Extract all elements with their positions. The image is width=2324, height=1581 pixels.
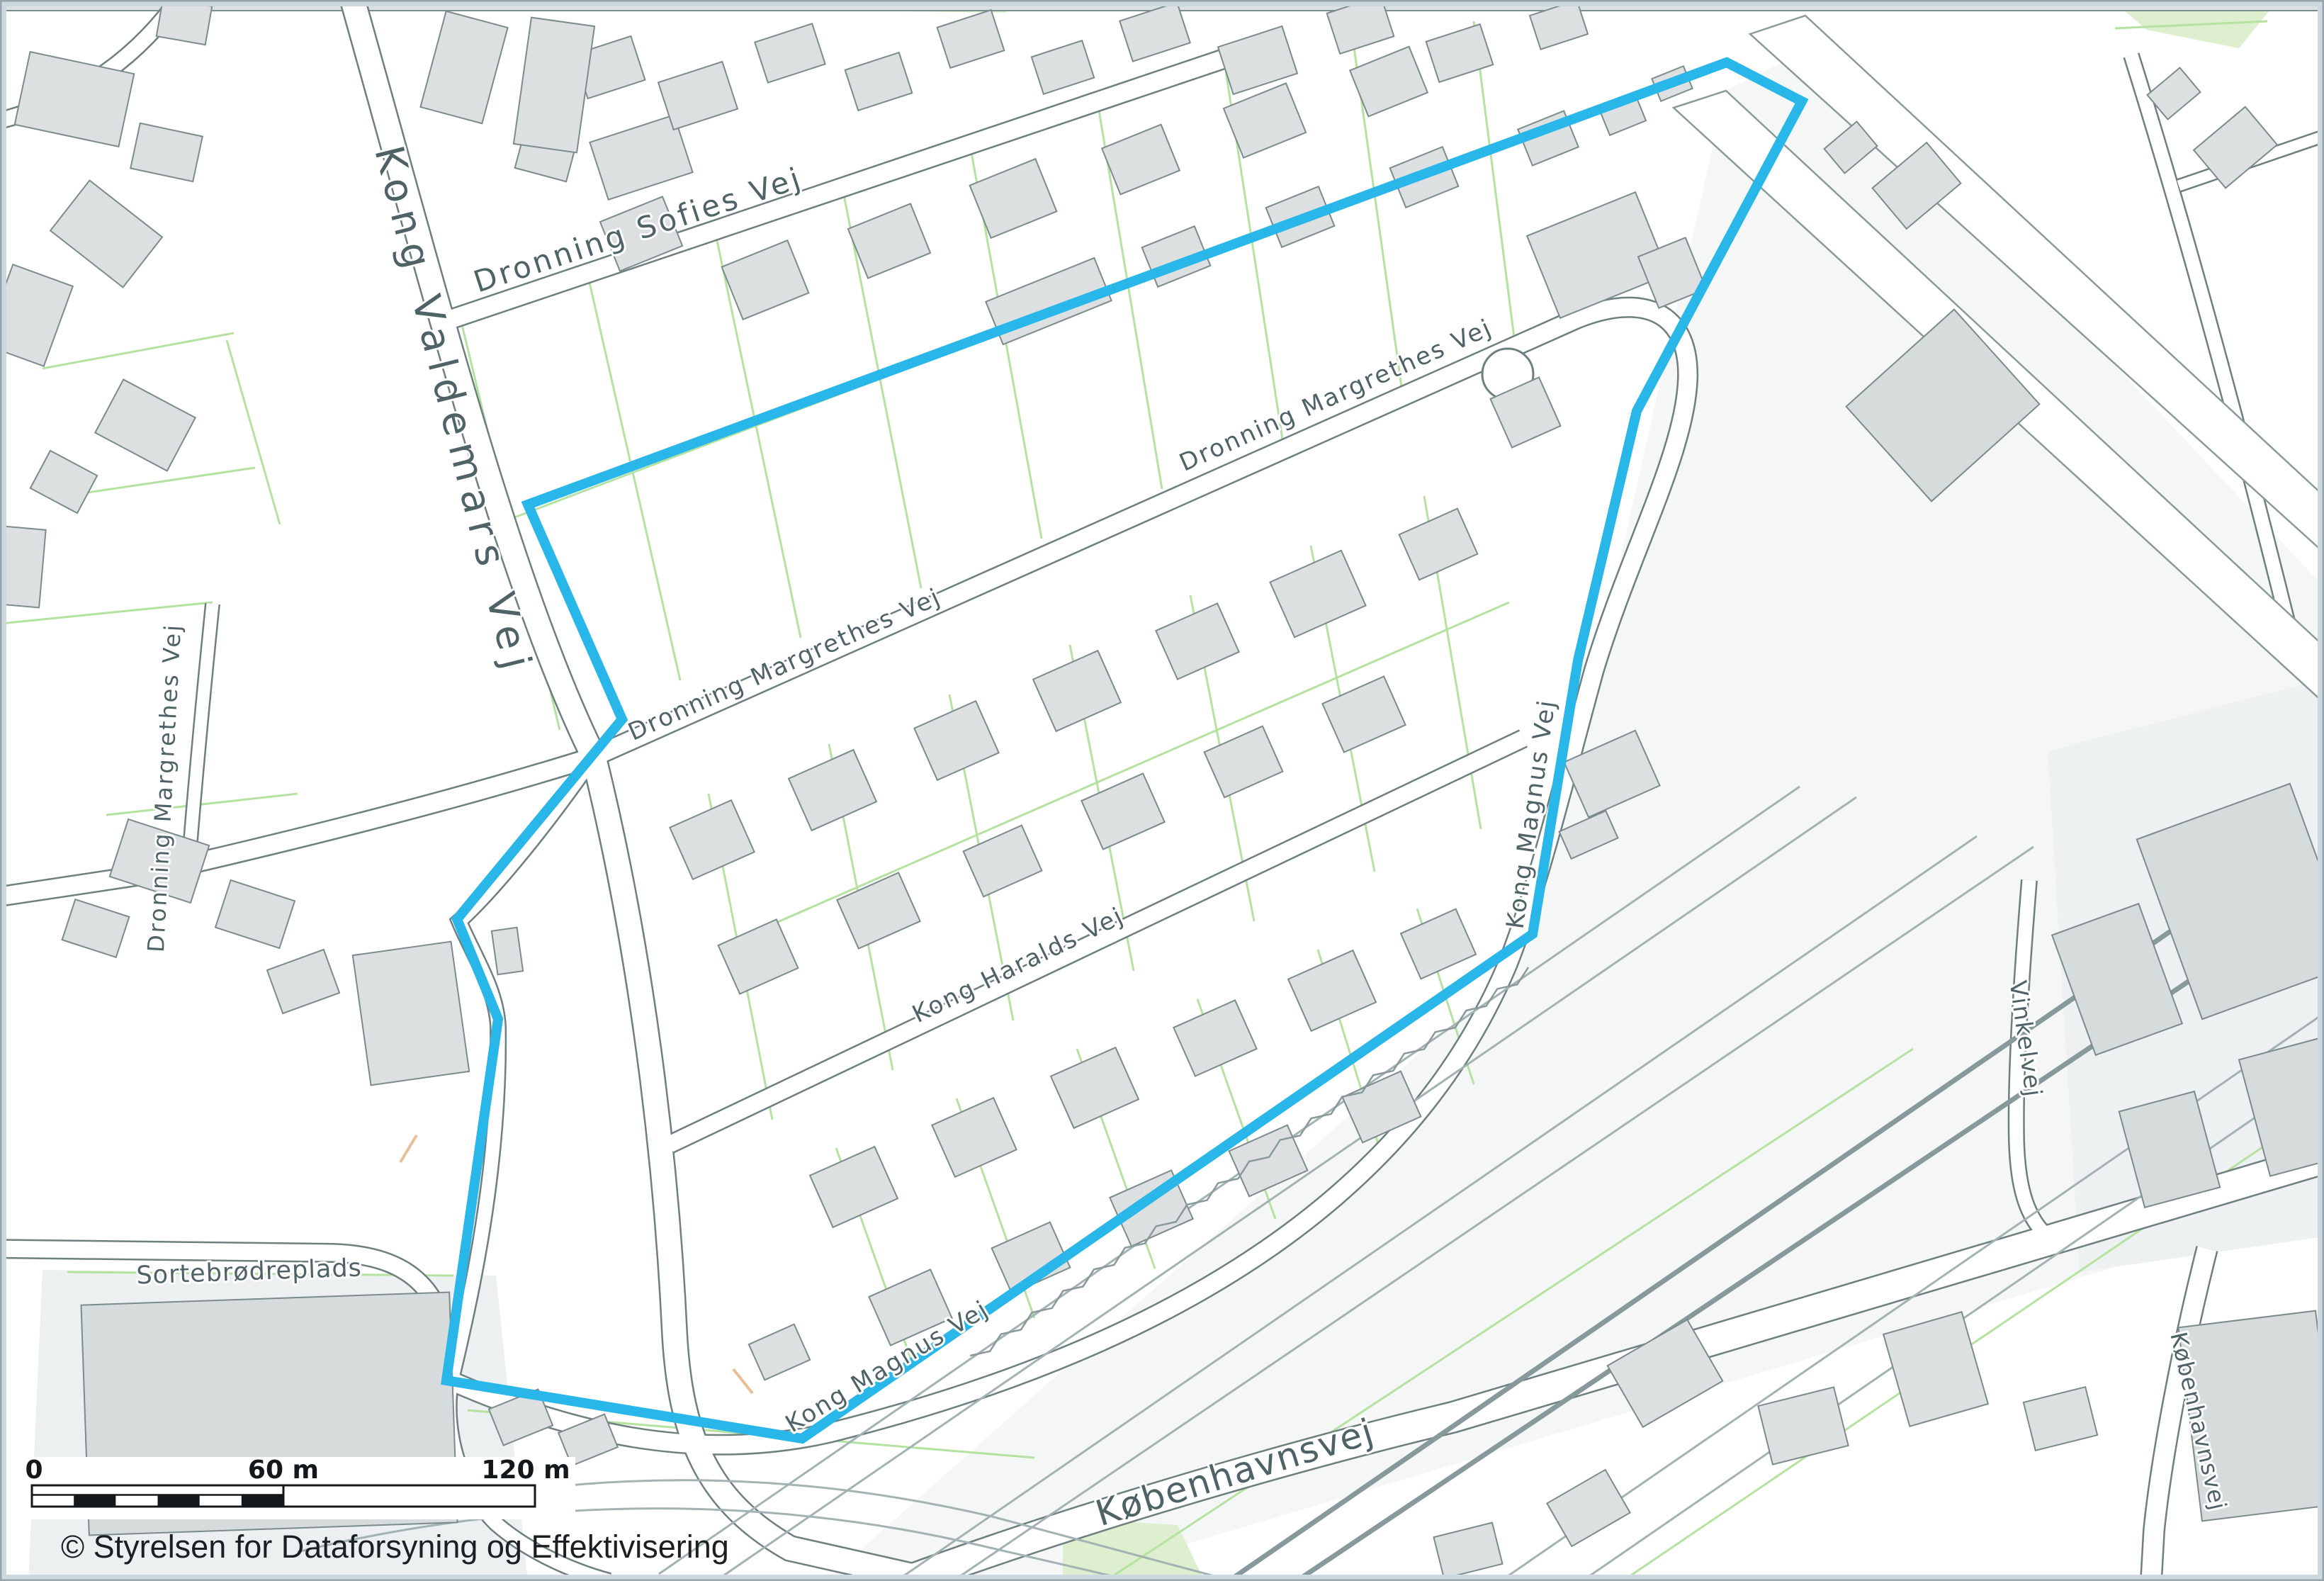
parcel-line <box>43 333 234 368</box>
building <box>0 527 46 608</box>
building <box>492 928 523 974</box>
scale-bar-segment <box>74 1495 115 1507</box>
street-label-dronning-margrethes-vej-ne: Dronning Margrethes Vej <box>1175 313 1497 477</box>
building <box>130 123 203 181</box>
scale-bar-graphic <box>32 1485 535 1507</box>
street-label-kong-valdemars-vej: Kong Valdemars Vej <box>365 141 541 682</box>
building <box>718 919 799 994</box>
building <box>1434 1523 1503 1579</box>
building <box>1288 950 1376 1031</box>
street-label-kong-haralds-vej: Kong Haralds Vej <box>908 901 1129 1028</box>
building <box>937 10 1005 68</box>
building <box>1270 551 1365 637</box>
building <box>215 880 295 948</box>
building <box>789 750 876 831</box>
building <box>514 18 594 153</box>
building <box>1399 509 1478 580</box>
building <box>970 159 1057 238</box>
building <box>420 11 507 124</box>
building <box>353 942 469 1086</box>
parcel-line <box>1474 21 1516 354</box>
building <box>1426 24 1494 82</box>
building <box>932 1098 1016 1177</box>
attribution-text: © Styrelsen for Dataforsyning og Effekti… <box>61 1529 729 1565</box>
parcel-line <box>227 340 280 524</box>
building <box>722 240 809 320</box>
building <box>95 379 195 471</box>
building <box>670 800 754 879</box>
building <box>810 1147 898 1227</box>
building <box>755 23 825 82</box>
scale-bar-segment <box>242 1495 283 1507</box>
building <box>62 899 130 957</box>
building <box>1322 676 1405 752</box>
building <box>2024 1387 2097 1451</box>
map-page: Kong Valdemars VejDronning Sofies VejDro… <box>0 0 2324 1581</box>
building <box>157 0 212 45</box>
orange-boundary-tick <box>733 1369 752 1393</box>
building <box>1156 603 1239 679</box>
scale-label-60: 60 m <box>248 1456 319 1485</box>
building <box>1032 40 1094 94</box>
building <box>914 701 998 780</box>
scale-label-120: 120 m <box>481 1456 570 1485</box>
building <box>845 52 913 111</box>
building <box>1033 651 1121 731</box>
building <box>267 950 339 1013</box>
scale-bar: 0 60 m 120 m <box>16 1456 575 1519</box>
building <box>0 264 73 366</box>
street-label-dronning-margrethes-vej-west: Dronning Margrethes Vej <box>142 622 186 953</box>
building <box>1173 1000 1256 1076</box>
scale-bar-segment <box>158 1495 200 1507</box>
building <box>837 872 920 948</box>
building <box>50 181 162 288</box>
building <box>1758 1387 1848 1464</box>
building <box>749 1324 810 1380</box>
building <box>658 62 738 130</box>
street-label-dronning-margrethes-vej-mid: Dronning Margrethes Vej <box>624 583 946 746</box>
building <box>1547 1470 1630 1546</box>
building <box>1205 726 1283 798</box>
building <box>1051 1047 1139 1128</box>
building <box>848 203 930 278</box>
building <box>1401 909 1476 979</box>
scale-label-0: 0 <box>25 1456 43 1485</box>
map-canvas: Kong Valdemars VejDronning Sofies VejDro… <box>0 0 2324 1581</box>
building <box>1224 83 1306 157</box>
building <box>1102 125 1180 195</box>
building <box>30 451 97 513</box>
orange-boundary-tick <box>400 1135 417 1162</box>
